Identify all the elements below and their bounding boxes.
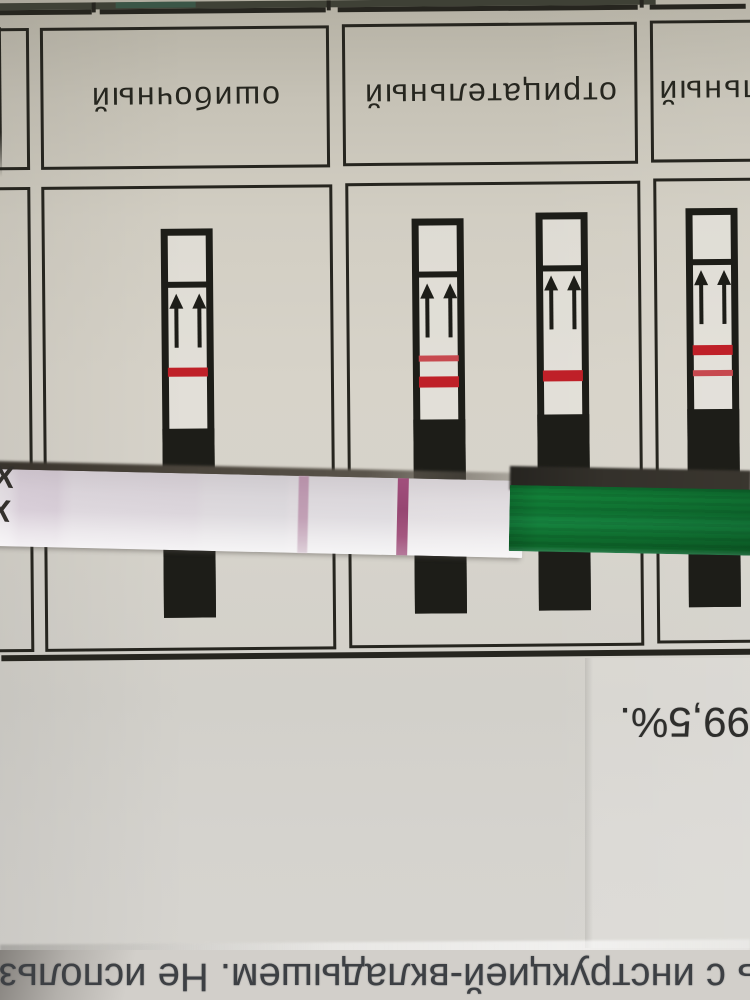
table-top-line-stub [640,0,644,8]
table-top-line-segment [100,7,326,14]
flow-arrows-icon [543,275,581,329]
strip-diagram-erroneous [161,228,216,617]
strip-x-mark: X [0,494,12,527]
percent-text: 99,5%. [360,696,750,746]
table-top-line-segment [0,9,92,15]
background-surface-teal-patch [116,2,196,9]
diagram-red-line [419,376,459,387]
flow-arrows-icon [419,283,457,337]
test-strip-faint-line [297,476,309,553]
diagram-window-divider [166,281,208,287]
photo-canvas: ошибочный отрицательный льный [0,0,750,1000]
heading-cell-erroneous: ошибочный [40,25,330,170]
test-strip-green-handle [509,485,750,556]
test-strip-strong-line [396,478,409,555]
diagram-red-line [693,345,733,355]
diagram-window-divider [691,259,733,265]
strip-x-mark: X [0,460,16,493]
diagram-window-divider [417,271,459,277]
heading-label-positive-fragment: льный [653,70,750,110]
diagram-cell-cut-left [0,187,34,653]
heading-cell-positive: льный [650,18,750,163]
flow-arrows-icon [693,270,731,324]
diagram-window-divider [541,265,583,271]
diagram-red-line [168,367,208,376]
table-top-line-stub [327,0,331,10]
heading-cell-cut-left [0,28,30,171]
diagram-red-line-thin [693,370,733,376]
heading-label-erroneous: ошибочный [43,78,326,117]
table-top-line-stub [92,2,96,12]
diagram-cell-negative [345,181,644,649]
heading-label-negative: отрицательный [345,74,634,114]
table-top-line-segment [650,4,746,10]
physical-test-strip: X X [0,469,524,558]
flow-arrows-icon [168,293,206,347]
heading-cell-negative: отрицательный [342,22,638,167]
diagram-red-line-thin [419,355,459,361]
instruction-text-fragment: ь с инструкцией-вкладышем. Не использова [0,950,750,1000]
diagram-red-line [543,370,583,381]
